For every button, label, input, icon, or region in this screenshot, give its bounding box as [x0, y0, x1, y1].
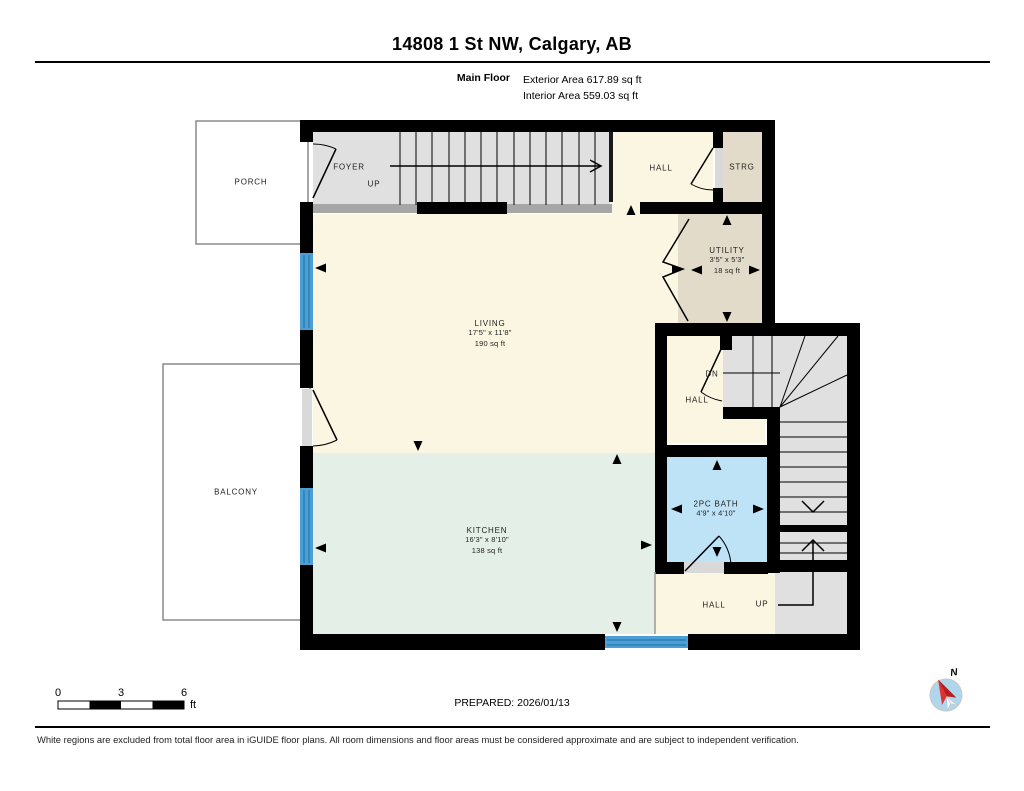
utility-dims: 3'5" x 5'3" — [709, 255, 744, 266]
hall-top-label: HALL — [649, 164, 672, 173]
compass-icon — [924, 672, 968, 716]
dn-label: DN — [705, 370, 718, 379]
hall-opening — [612, 202, 640, 215]
utility-label-block: UTILITY 3'5" x 5'3" 18 sq ft — [709, 246, 744, 276]
prepared-date: PREPARED: 2026/01/13 — [0, 697, 1024, 709]
kitchen-area: 138 sq ft — [465, 546, 509, 557]
bath-label-block: 2PC BATH 4'9" x 4'10" — [694, 499, 739, 519]
disclaimer-text: White regions are excluded from total fl… — [37, 734, 799, 745]
stairs-bottom-up-label: UP — [756, 600, 769, 609]
stairs-top-up-label: UP — [368, 180, 381, 189]
balcony-label: BALCONY — [214, 488, 258, 497]
living-label-block: LIVING 17'5" x 11'8" 190 sq ft — [468, 319, 511, 349]
hall-mid-label: HALL — [685, 396, 708, 405]
floor-plan-drawing — [0, 0, 1024, 791]
strg-label: STRG — [729, 163, 754, 172]
outdoor-areas — [163, 121, 310, 620]
foyer-label: FOYER — [333, 163, 365, 172]
utility-label: UTILITY — [709, 246, 744, 255]
footer-divider — [35, 726, 990, 728]
bath-dims: 4'9" x 4'10" — [694, 508, 739, 519]
living-area: 190 sq ft — [468, 339, 511, 350]
kitchen-dims: 16'3" x 8'10" — [465, 535, 509, 546]
winder-stairs-floor — [723, 336, 847, 407]
kitchen-bottom-window — [605, 636, 688, 648]
living-dims: 17'5" x 11'8" — [468, 328, 511, 339]
kitchen-label: KITCHEN — [465, 526, 509, 535]
kitchen-label-block: KITCHEN 16'3" x 8'10" 138 sq ft — [465, 526, 509, 556]
compass-north-label: N — [950, 667, 959, 679]
kitchen-window — [300, 488, 313, 565]
living-floor-upper — [313, 214, 678, 324]
porch-label: PORCH — [235, 178, 268, 187]
bath-label: 2PC BATH — [694, 499, 739, 508]
living-window — [300, 253, 313, 330]
hall-bottom-label: HALL — [702, 601, 725, 610]
landing-floor — [775, 572, 847, 634]
living-label: LIVING — [468, 319, 511, 328]
utility-area: 18 sq ft — [709, 266, 744, 277]
floor-plan-page: 14808 1 St NW, Calgary, AB Main Floor Ex… — [0, 0, 1024, 791]
